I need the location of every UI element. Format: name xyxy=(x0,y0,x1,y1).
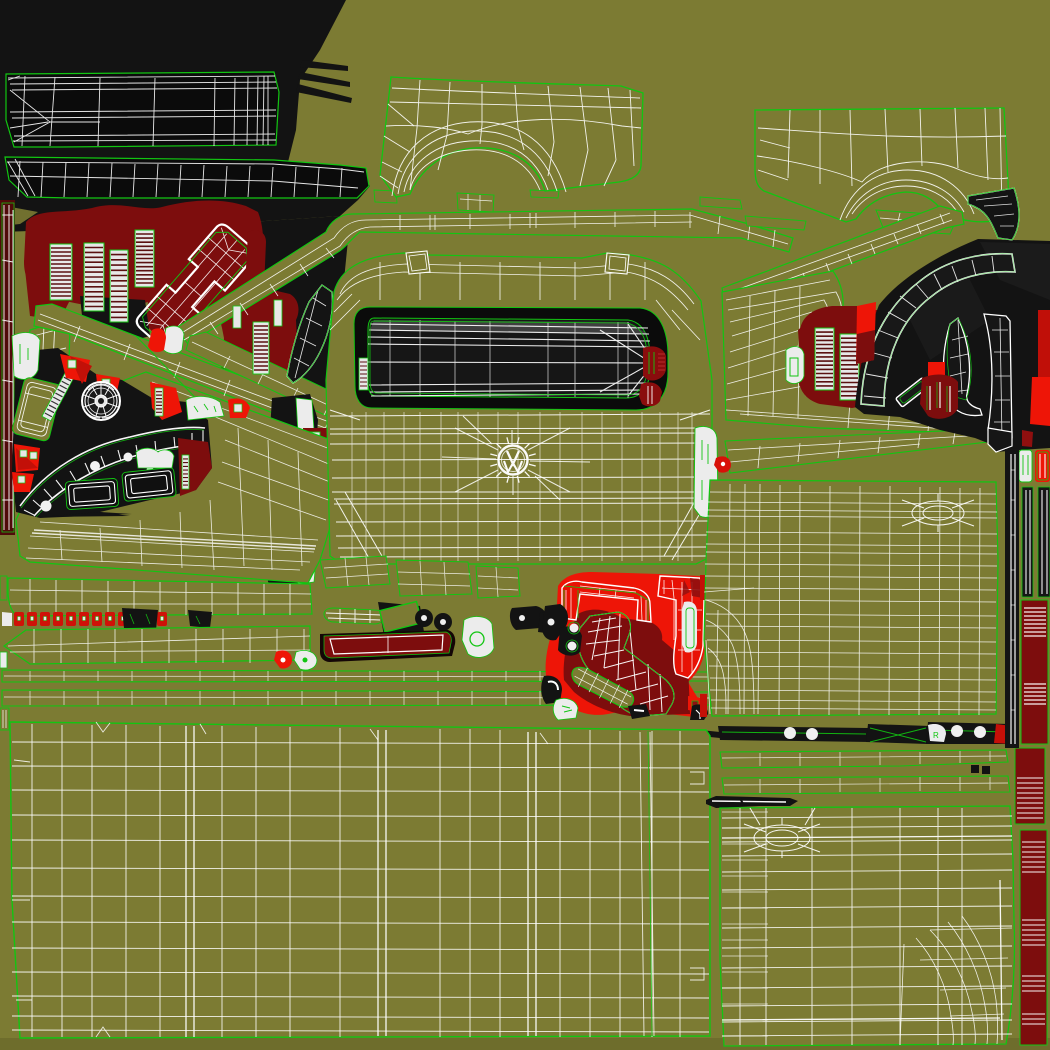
svg-text:R: R xyxy=(933,731,939,740)
